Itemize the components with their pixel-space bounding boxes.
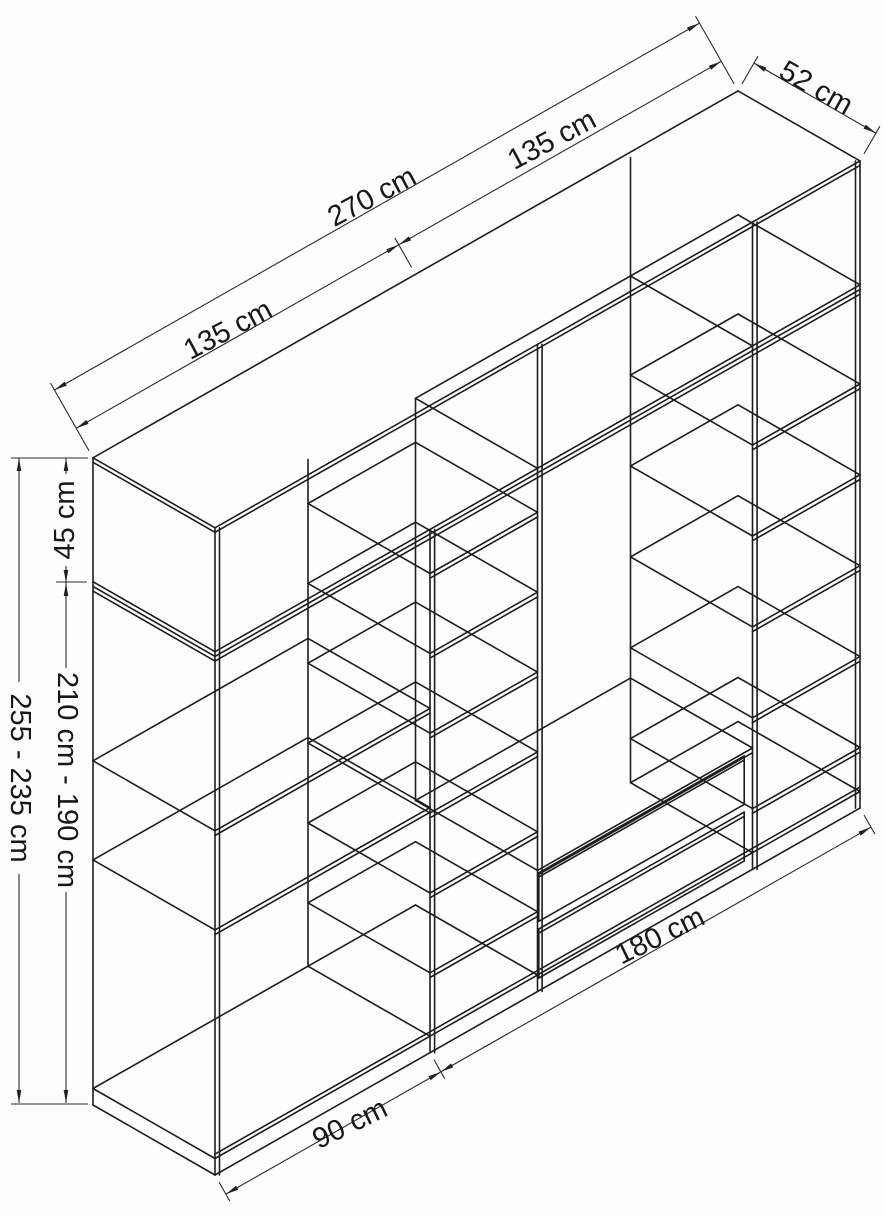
- dim-label-total-height-range: 255 - 235 cm: [4, 693, 36, 862]
- drawing-canvas: 270 cm 135 cm 135 cm 52 cm 45 cm 210 cm …: [0, 0, 884, 1216]
- dim-label-right-module-width: 135 cm: [503, 104, 602, 177]
- dim-label-total-width: 270 cm: [323, 161, 422, 234]
- dim-label-body-height-range: 210 cm - 190 cm: [51, 672, 83, 888]
- dim-label-base-right-width: 180 cm: [610, 901, 710, 971]
- wardrobe-outline: [93, 91, 860, 1175]
- dim-label-top-section-height: 45 cm: [49, 481, 81, 560]
- dim-label-depth: 52 cm: [774, 55, 859, 122]
- dim-label-left-module-width: 135 cm: [179, 294, 278, 367]
- dim-label-base-left-width: 90 cm: [307, 1092, 392, 1155]
- wardrobe-technical-drawing: 270 cm 135 cm 135 cm 52 cm 45 cm 210 cm …: [0, 0, 884, 1216]
